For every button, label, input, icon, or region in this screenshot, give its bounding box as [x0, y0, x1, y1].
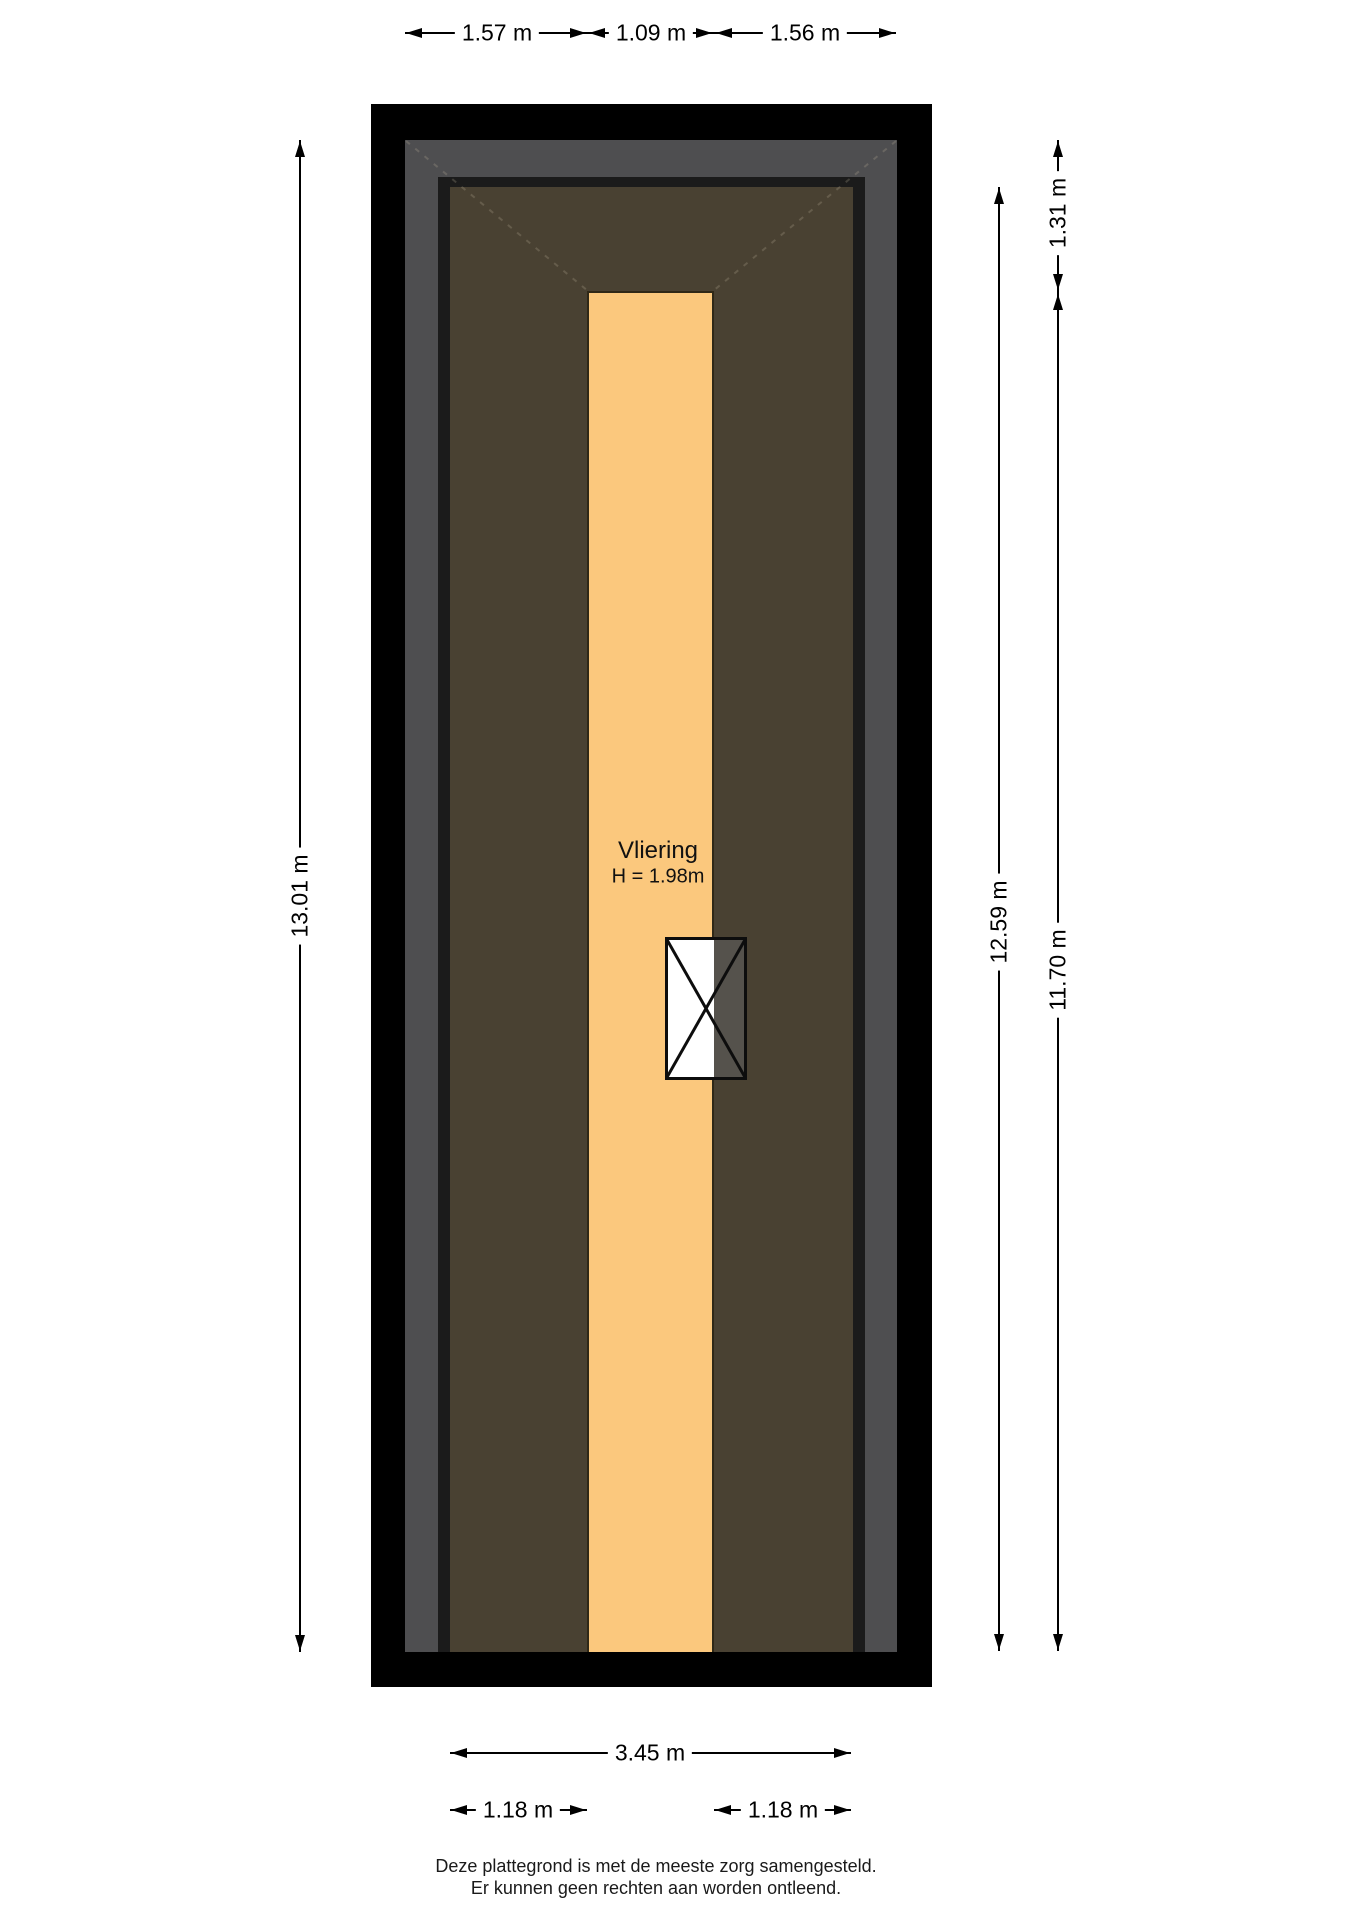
disclaimer: Deze plattegrond is met de meeste zorg s… — [435, 1855, 876, 1899]
disclaimer-line-2: Er kunnen geen rechten aan worden ontlee… — [435, 1877, 876, 1899]
dim-left-total: 13.01 m — [287, 847, 314, 944]
stair-hatch — [665, 937, 747, 1080]
dim-top-middle: 1.09 m — [609, 20, 693, 47]
dim-right-outer-bottom: 11.70 m — [1045, 922, 1072, 1017]
dim-top-left: 1.57 m — [455, 20, 539, 47]
dim-right-outer-top: 1.31 m — [1045, 171, 1072, 255]
floor-plan-page: 1.57 m 1.09 m 1.56 m 13.01 m 12.59 m 1.3… — [0, 0, 1358, 1920]
dim-bottom-right: 1.18 m — [741, 1797, 825, 1824]
dim-top-right: 1.56 m — [763, 20, 847, 47]
stair-hatch-drawing — [665, 937, 747, 1080]
disclaimer-line-1: Deze plattegrond is met de meeste zorg s… — [435, 1855, 876, 1877]
dim-bottom-total: 3.45 m — [608, 1740, 692, 1767]
room-name: Vliering — [618, 837, 698, 865]
room-height-label: H = 1.98m — [612, 866, 705, 889]
dim-right-inner: 12.59 m — [986, 873, 1013, 970]
dim-bottom-left: 1.18 m — [476, 1797, 560, 1824]
